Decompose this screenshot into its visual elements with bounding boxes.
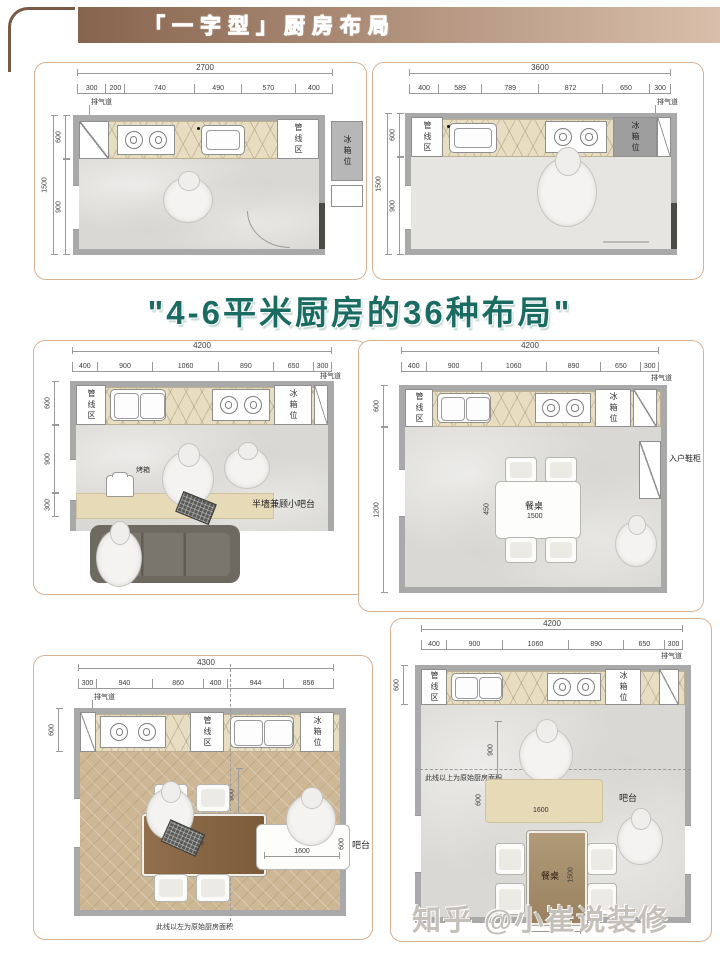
- dark-door-frame: [319, 203, 325, 249]
- double-sink-icon: [437, 393, 491, 423]
- pot-icon: [106, 475, 134, 497]
- watermark: 知乎 @小崔说装修: [412, 897, 669, 939]
- wall-right: [340, 708, 346, 916]
- person-figure: [286, 794, 336, 846]
- bar-label: 吧台: [352, 838, 370, 851]
- person-figure: [96, 529, 142, 587]
- dim-total: 3600: [409, 73, 671, 74]
- person-figure: [537, 157, 597, 227]
- chair: [495, 843, 525, 875]
- double-sink-icon: [451, 673, 503, 701]
- person-figure: [224, 447, 270, 489]
- pipeline-zone-box: 管线区: [405, 389, 433, 427]
- bar-width-dim: 1600: [533, 807, 549, 814]
- dim-segments: 400 589 789 872 650 300: [409, 84, 671, 94]
- dim-side-900: 900: [390, 200, 397, 212]
- dim-side-total: 1500: [42, 177, 49, 193]
- chair: [196, 784, 230, 812]
- plan-card-2700: 2700 300 200 740 490 570 400 排气道 管线区 烹饪区…: [34, 62, 367, 280]
- plan-card-4200-dining: 4200 400 900 1060 890 650 300 排气道 管线区 冰箱…: [358, 340, 704, 612]
- wall-right: [661, 385, 667, 593]
- dim-side-1200: 1200: [374, 502, 381, 518]
- dim-total: 2700: [77, 73, 333, 74]
- dim-side-line: [399, 113, 400, 157]
- pipeline-zone-box: 管线区: [76, 385, 106, 425]
- chair: [505, 457, 537, 483]
- dim-side-line: [65, 159, 66, 255]
- chair: [587, 843, 617, 875]
- wall-bottom: [74, 910, 346, 916]
- dim-segments: 400 900 1060 890 650 300: [421, 640, 683, 650]
- chair: [154, 874, 188, 902]
- dim-side-300: 300: [45, 499, 52, 511]
- dim-side-line: [383, 385, 384, 427]
- dark-door-frame: [671, 203, 677, 249]
- shoe-cabinet-label: 入户鞋柜: [669, 453, 701, 464]
- bar-depth-dim: 600: [476, 794, 483, 806]
- dim-side-900: 900: [45, 453, 52, 465]
- stove-icon: [100, 716, 166, 748]
- dim-side-600: 600: [56, 131, 63, 143]
- oven-label: 烤箱: [136, 465, 150, 475]
- stove-icon: [117, 125, 175, 155]
- kitchen-room: 管线区 冰箱位 洗涤区 操作区 烹饪区: [405, 113, 677, 255]
- window: [685, 825, 691, 875]
- wall-bottom: [73, 249, 325, 255]
- sink-icon: [449, 123, 497, 153]
- dim-side-line: [383, 427, 384, 593]
- faucet-dot: [447, 125, 450, 128]
- dim-side-600: 600: [49, 724, 56, 736]
- bar-label: 吧台: [619, 791, 637, 804]
- dim-total: 4200: [421, 629, 683, 630]
- sink-icon: [201, 125, 245, 155]
- exhaust-duct-label: 排气道: [651, 373, 672, 383]
- dim-total: 4200: [401, 351, 659, 352]
- kitchen-room: 管线区 烹饪区 操作区 洗涤区: [73, 115, 325, 255]
- wall-right: [685, 665, 691, 923]
- dim-side-line: [399, 157, 400, 255]
- dining-table-label: 餐桌: [541, 869, 559, 882]
- wall-bottom: [399, 587, 667, 593]
- wall-right: [328, 381, 334, 531]
- exhaust-duct-label: 排气道: [94, 692, 115, 702]
- fridge-position-box: 冰箱位: [331, 121, 363, 181]
- corner-cabinet: [79, 121, 109, 159]
- faucet-dot: [197, 127, 200, 130]
- dim-segments: 400 900 1060 890 650 300: [72, 362, 332, 372]
- person-figure: [615, 521, 657, 567]
- pipeline-zone-box: 管线区: [421, 669, 447, 705]
- plan-card-4300-island: 4300 300 940 860 400 944 856 排气道 管线区 冰箱位…: [33, 655, 373, 940]
- page-title: "4-6平米厨房的36种布局": [0, 286, 720, 334]
- bar-width-dim: 1600: [264, 856, 340, 857]
- corner-cabinet: [80, 712, 96, 752]
- chair: [505, 537, 537, 563]
- dim-total: 4300: [78, 668, 334, 669]
- bar-depth-dim: 600: [339, 838, 346, 850]
- corner-cabinet: [659, 669, 679, 705]
- dim-side-line: [65, 115, 66, 159]
- dim-total: 4200: [72, 351, 332, 352]
- dining-table-width: 1500: [527, 513, 543, 520]
- fridge-position-box: 冰箱位: [613, 117, 657, 157]
- bar-counter: [485, 779, 603, 823]
- dim-side-line: [54, 493, 55, 517]
- chair: [545, 537, 577, 563]
- double-sink-icon: [110, 389, 166, 421]
- person-figure: [519, 727, 573, 783]
- stove-icon: [212, 389, 270, 421]
- dim-side-total: 1500: [376, 176, 383, 192]
- dining-table-length: 1500: [568, 867, 575, 883]
- banner-title: 「一字型」厨房布局: [144, 10, 396, 40]
- corner-cabinet: [633, 389, 657, 427]
- pipeline-zone-box: 管线区: [411, 117, 443, 157]
- dim-segments: 400 900 1060 890 650 300: [401, 362, 659, 372]
- boundary-caption: 此线以左为原始厨房面积: [156, 922, 233, 932]
- dim-side-total-line: [387, 113, 388, 255]
- dining-table-label: 餐桌: [525, 499, 543, 512]
- wall-bottom: [405, 249, 677, 255]
- stove-icon: [545, 121, 607, 153]
- dim-side-600: 600: [374, 400, 381, 412]
- fridge-position-box: 冰箱位: [274, 385, 312, 425]
- pipeline-zone-box: 管线区: [277, 119, 319, 159]
- chair: [545, 457, 577, 483]
- chair: [196, 874, 230, 902]
- dim-side-900: 900: [56, 201, 63, 213]
- dim-side-600: 600: [394, 679, 401, 691]
- dim-inner-line: [497, 721, 498, 779]
- exhaust-duct-label: 排气道: [661, 651, 682, 661]
- plan-card-3600: 3600 400 589 789 872 650 300 排气道 管线区 冰箱位…: [372, 62, 704, 280]
- exhaust-duct-label: 排气道: [320, 371, 341, 381]
- stove-icon: [547, 673, 601, 701]
- dim-side-total-line: [53, 115, 54, 255]
- door-leaf: [603, 241, 649, 243]
- exhaust-duct-label: 排气道: [657, 97, 678, 107]
- dim-side-line: [58, 708, 59, 752]
- dim-segments: 300 200 740 490 570 400: [77, 84, 333, 94]
- dim-inner-900: 900: [488, 744, 495, 756]
- plan-card-4200-bar-sofa: 4200 400 900 1060 890 650 300 排气道 管线区 冰箱…: [33, 340, 368, 595]
- header-banner: 「一字型」厨房布局: [78, 7, 720, 43]
- double-sink-icon: [230, 716, 294, 748]
- person-figure: [163, 177, 213, 223]
- dim-segments: 300 940 860 400 944 856: [78, 679, 334, 689]
- dining-table-depth: 450: [484, 503, 491, 515]
- corner-cabinet: [314, 385, 328, 425]
- dim-side-line: [54, 381, 55, 425]
- fridge-position-box: 冰箱位: [605, 669, 641, 705]
- cabinet-box: [331, 185, 363, 207]
- exhaust-duct-label: 排气道: [91, 97, 112, 107]
- person-figure: [617, 815, 663, 865]
- fridge-position-box: 冰箱位: [300, 712, 334, 752]
- dim-side-600: 600: [390, 129, 397, 141]
- stove-icon: [535, 393, 591, 423]
- fridge-position-box: 冰箱位: [595, 389, 631, 427]
- dim-side-600: 600: [45, 397, 52, 409]
- bar-note-label: 半墙兼顾小吧台: [252, 497, 315, 510]
- plan-card-4200-bar-table: 4200 400 900 1060 890 650 300 排气道 管线区 冰箱…: [390, 618, 712, 942]
- dim-side-line: [403, 665, 404, 705]
- corner-cabinet: [657, 117, 671, 157]
- dim-side-line: [54, 425, 55, 493]
- pipeline-zone-box: 管线区: [190, 712, 224, 752]
- shoe-cabinet: [639, 441, 661, 499]
